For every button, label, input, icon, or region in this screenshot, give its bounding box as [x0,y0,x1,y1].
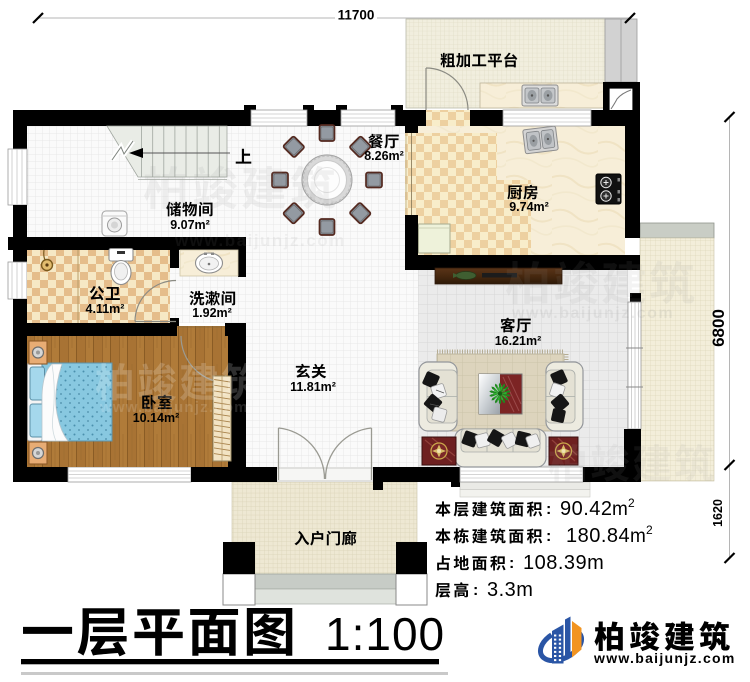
svg-text:www.baijunjz.com: www.baijunjz.com [174,231,346,250]
svg-text::: : [509,555,514,572]
svg-text::: : [546,501,551,518]
svg-text:180.84: 180.84 [566,525,630,547]
svg-text:www.baijunjz.com: www.baijunjz.com [511,305,674,322]
svg-text:1.92m²: 1.92m² [192,306,232,320]
svg-text:2: 2 [646,523,653,537]
svg-text:3.3m: 3.3m [487,579,533,601]
svg-text:9.07m²: 9.07m² [170,218,210,232]
svg-text:m: m [630,526,646,547]
svg-text:8.26m²: 8.26m² [364,149,404,163]
svg-text:16.21m²: 16.21m² [495,334,542,348]
svg-text:108.39m: 108.39m [523,552,604,574]
svg-text::: : [473,582,478,599]
svg-text:11700: 11700 [338,8,375,23]
svg-text:4.11m²: 4.11m² [86,302,125,316]
svg-text:1620: 1620 [711,499,725,527]
svg-text:11.81m²: 11.81m² [290,380,336,394]
svg-text:www.baijunjz.com: www.baijunjz.com [593,650,736,666]
svg-text:6800: 6800 [709,309,728,347]
svg-text:www.baijunjz.com: www.baijunjz.com [99,399,249,416]
svg-text:2: 2 [628,496,635,510]
svg-text:m: m [612,499,628,520]
svg-text:1:100: 1:100 [325,608,445,660]
svg-text::: : [546,528,551,545]
svg-text:9.74m²: 9.74m² [509,200,549,214]
svg-text:90.42: 90.42 [560,498,613,520]
